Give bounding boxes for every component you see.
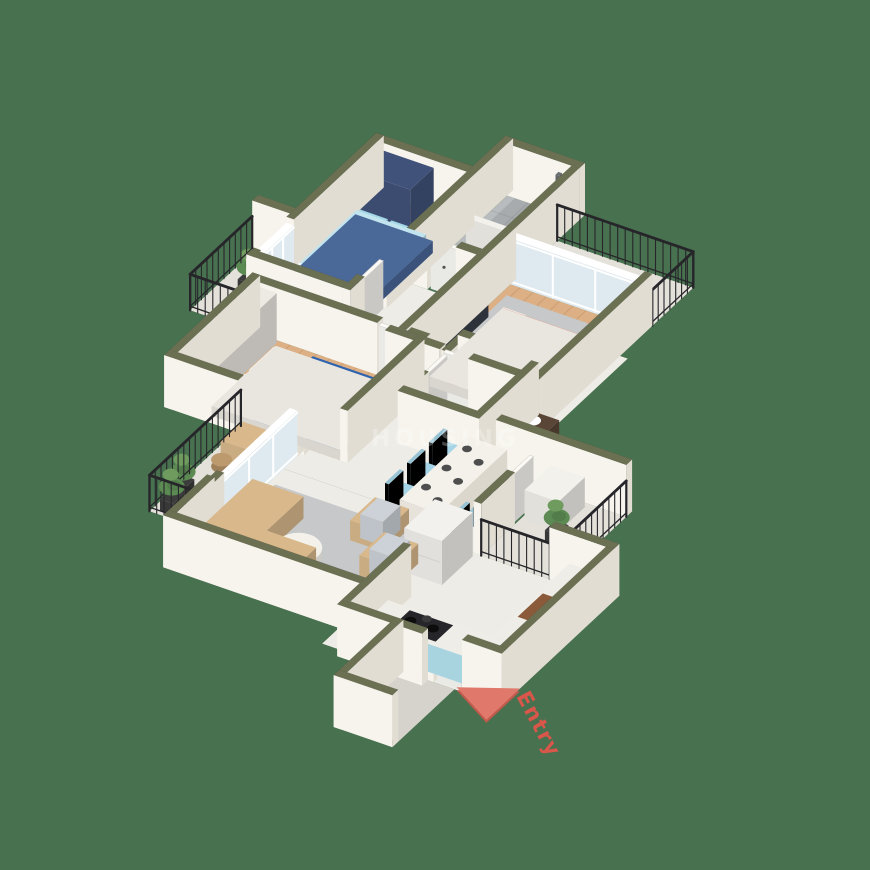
housing-watermark: HOUSING [371, 426, 520, 452]
floorplan-3d-render: HOUSING Entry [0, 0, 870, 870]
floorplan-stage: HOUSING Entry [0, 0, 870, 870]
